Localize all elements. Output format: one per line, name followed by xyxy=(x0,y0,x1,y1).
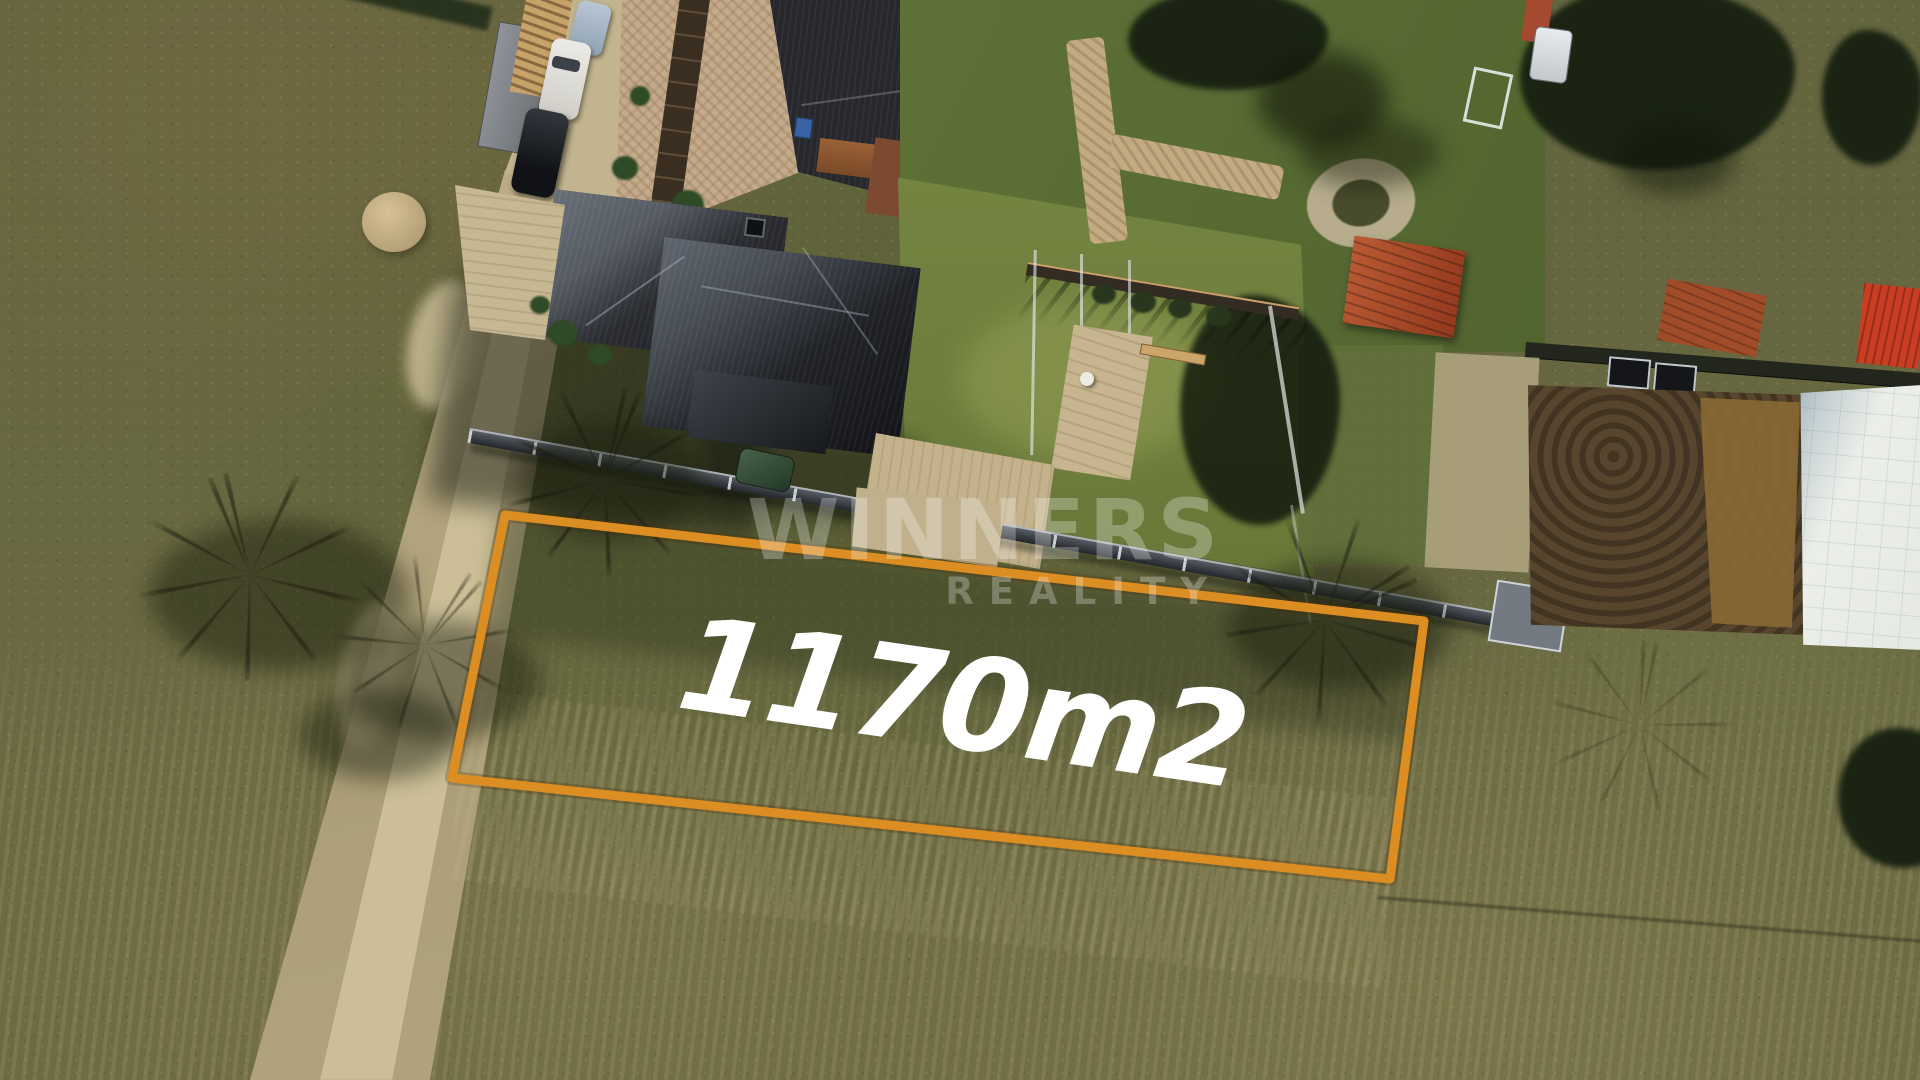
skylight-frame xyxy=(1607,356,1651,390)
tree-shadow xyxy=(1615,120,1735,195)
bush xyxy=(1206,305,1232,327)
caravan xyxy=(1528,26,1573,85)
chimney xyxy=(744,217,766,238)
tree-shadow xyxy=(300,690,460,780)
skylight-blue xyxy=(794,117,813,139)
bush xyxy=(1092,284,1116,304)
bush xyxy=(612,156,638,180)
concrete-slab xyxy=(1790,385,1920,650)
tree-shadow xyxy=(1300,118,1440,188)
garden-table xyxy=(1080,372,1094,386)
bright-red-roof xyxy=(1856,283,1920,369)
red-shed-roof xyxy=(1342,236,1465,339)
bush xyxy=(1130,291,1156,313)
gravel-strip xyxy=(1424,352,1539,572)
tree-mass xyxy=(1822,30,1920,165)
bush xyxy=(530,296,550,314)
sand-mound xyxy=(362,192,426,252)
bush xyxy=(630,86,650,106)
ochre-dirt-streak xyxy=(1700,393,1800,628)
bush xyxy=(1168,298,1192,318)
bush xyxy=(548,320,578,346)
bush xyxy=(588,344,612,366)
aerial-photo: WINNERS REALITY 1170m2 xyxy=(0,0,1920,1080)
